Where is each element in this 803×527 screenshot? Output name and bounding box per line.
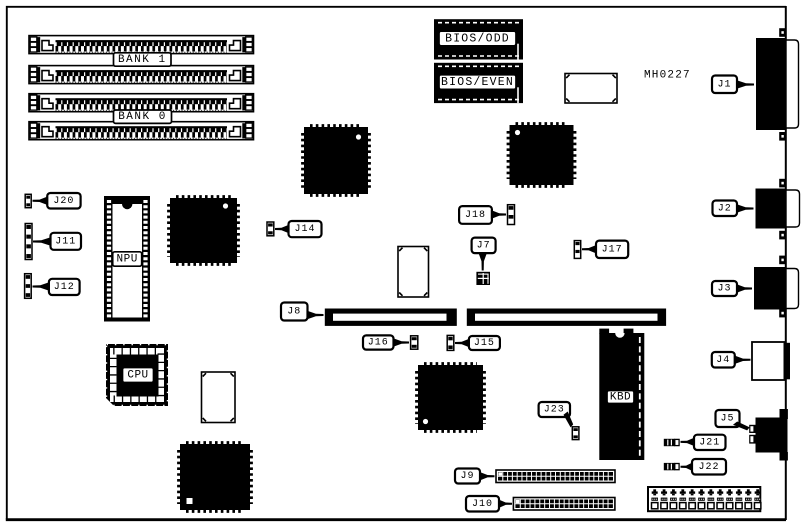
svg-text:BIOS/EVEN: BIOS/EVEN bbox=[441, 76, 514, 89]
svg-text:J14: J14 bbox=[294, 224, 315, 235]
svg-text:J1: J1 bbox=[717, 79, 731, 90]
svg-text:J22: J22 bbox=[698, 462, 719, 473]
svg-text:BANK 1: BANK 1 bbox=[118, 54, 167, 66]
svg-text:J12: J12 bbox=[54, 282, 75, 293]
svg-text:J23: J23 bbox=[544, 405, 565, 416]
svg-text:J15: J15 bbox=[474, 338, 495, 349]
svg-text:J11: J11 bbox=[55, 236, 76, 247]
svg-text:J20: J20 bbox=[53, 196, 74, 207]
svg-text:J16: J16 bbox=[368, 338, 389, 349]
svg-text:J18: J18 bbox=[465, 210, 486, 221]
svg-text:J17: J17 bbox=[602, 244, 623, 255]
svg-text:J4: J4 bbox=[716, 355, 730, 366]
svg-text:J9: J9 bbox=[460, 471, 474, 482]
svg-text:KBD: KBD bbox=[610, 392, 631, 404]
svg-text:J3: J3 bbox=[717, 284, 731, 295]
svg-text:J7: J7 bbox=[477, 240, 491, 251]
svg-text:J10: J10 bbox=[472, 499, 493, 510]
svg-text:CPU: CPU bbox=[127, 370, 148, 382]
svg-text:NPU: NPU bbox=[117, 254, 138, 266]
svg-text:BIOS/ODD: BIOS/ODD bbox=[445, 33, 510, 46]
svg-text:BANK 0: BANK 0 bbox=[118, 111, 167, 123]
svg-text:J5: J5 bbox=[720, 414, 734, 425]
svg-text:MH0227: MH0227 bbox=[644, 70, 691, 82]
svg-text:J2: J2 bbox=[718, 203, 732, 214]
svg-text:J21: J21 bbox=[699, 437, 720, 448]
svg-text:J8: J8 bbox=[287, 307, 301, 318]
